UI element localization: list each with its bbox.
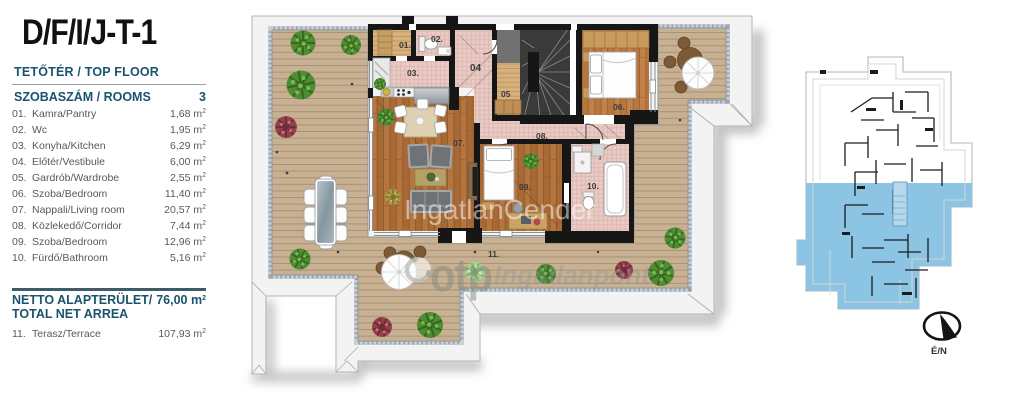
svg-text:07.: 07. [453, 138, 465, 148]
svg-text:03.: 03. [407, 68, 419, 78]
svg-text:09.: 09. [519, 182, 531, 192]
svg-text:02.: 02. [431, 34, 443, 44]
svg-text:05: 05 [501, 89, 511, 99]
svg-text:IngatlanCender: IngatlanCender [404, 194, 595, 225]
svg-text:10.: 10. [587, 181, 599, 191]
svg-text:08.: 08. [536, 131, 548, 141]
svg-text:É/N: É/N [931, 346, 947, 357]
svg-text:Ingatlanpont: Ingatlanpont [494, 260, 651, 290]
svg-text:06.: 06. [613, 102, 625, 112]
svg-text:01.: 01. [399, 40, 411, 50]
svg-text:04: 04 [470, 63, 482, 74]
svg-text:otp: otp [430, 249, 492, 301]
